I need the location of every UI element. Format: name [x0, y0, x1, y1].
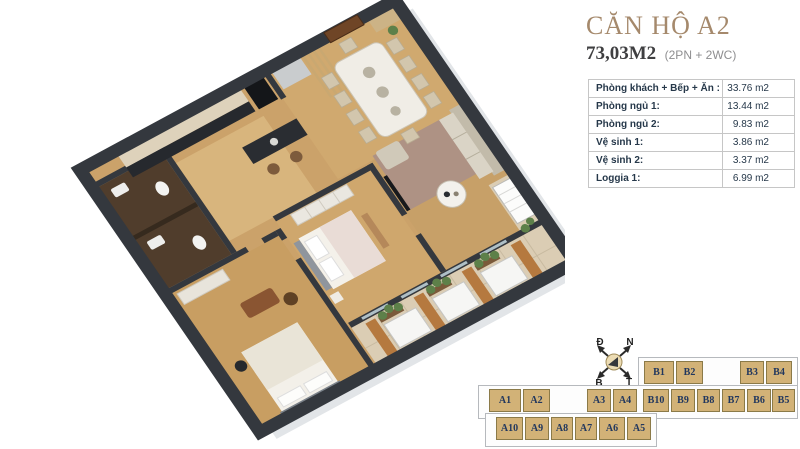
unit-cell-b1[interactable]: B1	[644, 361, 674, 384]
table-row: Phòng ngủ 1: 13.44 m2	[589, 98, 795, 116]
table-row: Vệ sinh 2: 3.37 m2	[589, 152, 795, 170]
floorplan-3d-render	[0, 0, 565, 449]
room-label: Phòng khách + Bếp + Ăn :	[589, 80, 723, 98]
table-row: Vệ sinh 1: 3.86 m2	[589, 134, 795, 152]
compass-label-nw: Đ	[596, 337, 603, 348]
unit-cell-a5[interactable]: A5	[627, 417, 651, 440]
room-value: 3.37 m2	[723, 152, 795, 170]
title-block: CĂN HỘ A2 73,03M2 (2PN + 2WC)	[586, 12, 796, 65]
unit-cell-b3[interactable]: B3	[740, 361, 764, 384]
table-row: Loggia 1: 6.99 m2	[589, 170, 795, 188]
compass-icon: Đ N B T	[584, 334, 646, 388]
room-label: Loggia 1:	[589, 170, 723, 188]
compass-label-ne: N	[626, 337, 633, 348]
unit-cell-a6[interactable]: A6	[599, 417, 625, 440]
unit-cell-b2[interactable]: B2	[676, 361, 703, 384]
unit-cell-b7[interactable]: B7	[722, 389, 745, 412]
room-label: Phòng ngủ 2:	[589, 116, 723, 134]
unit-cell-b10[interactable]: B10	[643, 389, 669, 412]
table-row: Phòng ngủ 2: 9.83 m2	[589, 116, 795, 134]
apartment-title: CĂN HỘ A2	[586, 12, 796, 40]
floorplan-iso	[77, 0, 565, 444]
unit-cell-a7[interactable]: A7	[575, 417, 597, 440]
unit-cell-b6[interactable]: B6	[747, 389, 771, 412]
unit-cell-b4[interactable]: B4	[766, 361, 792, 384]
unit-cell-a10[interactable]: A10	[496, 417, 523, 440]
room-value: 13.44 m2	[723, 98, 795, 116]
unit-strip-a-bottom: A10 A9 A8 A7 A6 A5	[485, 413, 657, 447]
unit-cell-b9[interactable]: B9	[671, 389, 695, 412]
room-label: Phòng ngủ 1:	[589, 98, 723, 116]
unit-cell-b8[interactable]: B8	[697, 389, 720, 412]
unit-cell-a4[interactable]: A4	[613, 389, 637, 412]
unit-cell-a1[interactable]: A1	[489, 389, 521, 412]
unit-cell-a3[interactable]: A3	[587, 389, 611, 412]
apartment-area: 73,03M2 (2PN + 2WC)	[586, 43, 796, 65]
area-value: 73,03M2	[586, 43, 656, 64]
unit-cell-b5[interactable]: B5	[772, 389, 795, 412]
room-value: 3.86 m2	[723, 134, 795, 152]
room-value: 9.83 m2	[723, 116, 795, 134]
room-value: 33.76 m2	[723, 80, 795, 98]
room-label: Vệ sinh 1:	[589, 134, 723, 152]
room-area-table: Phòng khách + Bếp + Ăn : 33.76 m2 Phòng …	[588, 79, 795, 188]
room-value: 6.99 m2	[723, 170, 795, 188]
room-label: Vệ sinh 2:	[589, 152, 723, 170]
unit-cell-a2[interactable]: A2	[523, 389, 550, 412]
unit-cell-a8[interactable]: A8	[551, 417, 573, 440]
table-row: Phòng khách + Bếp + Ăn : 33.76 m2	[589, 80, 795, 98]
unit-cell-a9[interactable]: A9	[525, 417, 549, 440]
area-note: (2PN + 2WC)	[665, 48, 737, 62]
floorplan-page: CĂN HỘ A2 73,03M2 (2PN + 2WC) Phòng khác…	[0, 0, 800, 449]
